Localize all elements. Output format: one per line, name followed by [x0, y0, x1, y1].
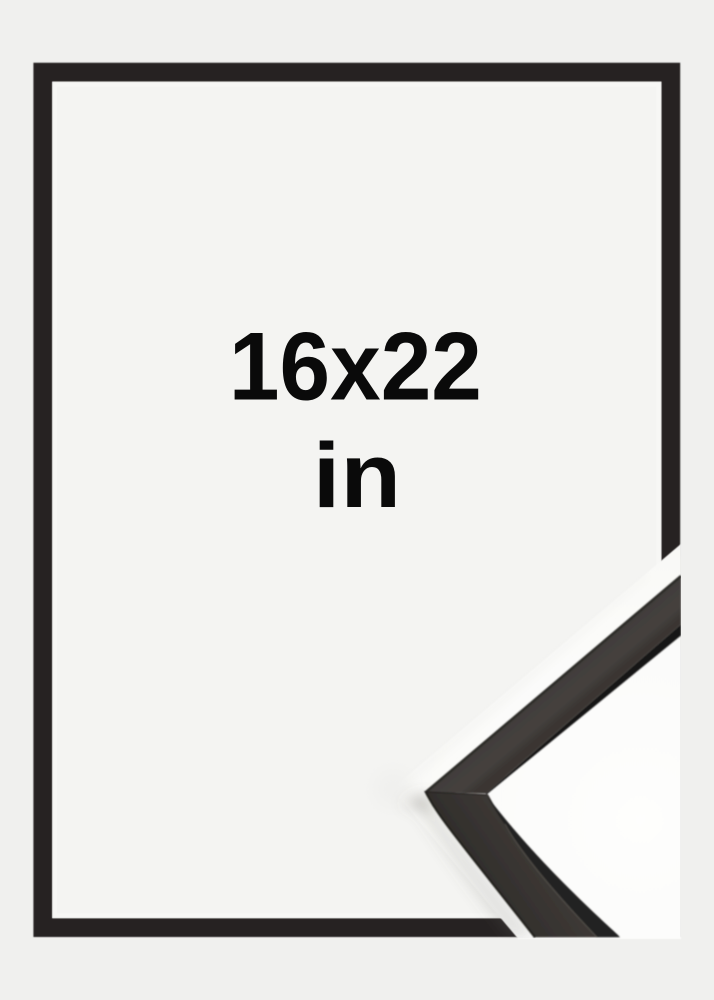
- svg-text:16x22: 16x22: [229, 312, 482, 420]
- svg-text:in: in: [313, 424, 401, 527]
